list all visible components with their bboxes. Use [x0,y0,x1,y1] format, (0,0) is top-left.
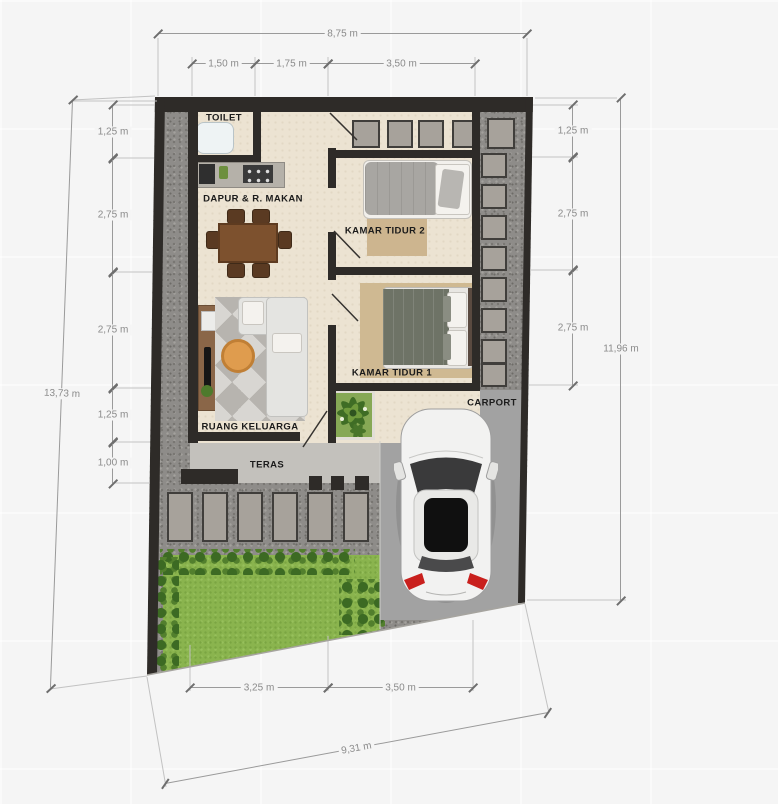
dim-label: 3,50 m [382,683,419,694]
paving-tile [481,153,507,178]
wall-bedroom2-north [336,150,480,158]
dining-chair [278,231,292,249]
bed-single-blanket [365,162,439,215]
dim-label: 1,25 m [95,410,132,421]
paving-tile [481,339,507,364]
wall-bedroom-divider [336,267,480,275]
dining-table [218,223,278,263]
paving-tile [481,184,507,209]
dim-label: 1,25 m [555,126,592,137]
dim-left-seg-2: 2,75 m [112,272,113,388]
dim-left-seg-3: 1,25 m [112,388,113,442]
dim-right-seg-0: 1,25 m [572,105,573,157]
dim-top-total: 8,75 m [158,33,527,34]
label-text: KAMAR TIDUR 2 [345,226,425,237]
label-text: TERAS [250,460,284,471]
refrigerator [199,164,215,184]
dim-right-total: 11,96 m [620,98,621,600]
wall-living-south [188,432,300,441]
paving-tile [481,308,507,333]
room-label-kitchen-dining: DAPUR & R. MAKAN [203,194,303,205]
wall-hall-1 [328,148,336,188]
dim-left-total: 13,73 m [50,100,73,688]
wall-north [147,97,533,112]
dim-top-seg-1: 1,75 m [255,63,328,64]
wall-hall-3 [328,325,336,443]
dim-label: 2,75 m [95,325,132,336]
pillow [443,296,451,322]
dim-label: 3,25 m [241,683,278,694]
label-text: DAPUR & R. MAKAN [203,194,303,205]
paving-tile [418,120,444,148]
stove [243,165,273,183]
toilet-sink [196,122,234,154]
terrace-post [355,476,369,490]
label-text: RUANG KELUARGA [202,422,299,433]
paving-tile [481,246,507,271]
paving-tile [352,120,380,148]
paving-tile [237,492,263,542]
dim-label: 9,31 m [337,740,375,757]
wall-toilet-east [253,112,261,162]
dim-label: 1,75 m [273,59,310,70]
room-label-terrace: TERAS [250,460,284,471]
dining-chair [227,263,245,278]
dim-label: 2,75 m [555,208,592,219]
paving-tile [307,492,333,542]
paving-tile [481,215,507,240]
bed-double-blanket [383,289,449,365]
dim-right-seg-1: 2,75 m [572,157,573,270]
sofa-pillow [272,333,302,353]
room-label-toilet: TOILET [206,113,242,124]
hedge-right-bush [339,579,385,635]
dim-left-seg-0: 1,25 m [112,105,113,158]
dim-right-seg-2: 2,75 m [572,270,573,385]
wall-terrace-front [181,469,238,484]
room-label-family-room: RUANG KELUARGA [202,422,299,433]
dining-chair [227,209,245,224]
dining-chair [252,209,270,224]
paving-tile [202,492,228,542]
paving-tile [343,492,369,542]
dim-top-seg-0: 1,50 m [192,63,255,64]
coffee-table [221,339,255,373]
sofa-pillow [242,301,264,325]
dim-bottom-seg-0: 3,25 m [190,687,328,688]
dim-label: 3,50 m [383,59,420,70]
dim-label: 1,25 m [95,126,132,137]
label-text: KAMAR TIDUR 1 [352,368,432,379]
paving-tile [481,277,507,302]
dim-left-seg-4: 1,00 m [112,442,113,483]
wall-entry-stub [328,432,336,441]
sofa-right [266,297,308,417]
dim-label: 2,75 m [555,322,592,333]
label-text: CARPORT [467,398,517,409]
dim-bottom-total: 9,31 m [165,712,548,784]
dining-chair [252,263,270,278]
wall-hall-2 [328,232,336,280]
dim-label: 1,50 m [205,59,242,70]
paving-tile [272,492,298,542]
terrace-post [331,476,344,490]
dim-label: 2,75 m [95,210,132,221]
terrace-post [309,476,322,490]
paving-tile [481,363,507,387]
sunroof [424,498,468,552]
pillow [443,334,451,360]
cabinet-plant [201,385,213,397]
planter-box [331,390,375,440]
dim-left-seg-1: 2,75 m [112,158,113,272]
dim-label: 11,96 m [600,344,641,355]
paving-tile [167,492,193,542]
paving-tile [387,120,413,148]
dim-label: 13,73 m [41,388,84,401]
label-text: TOILET [206,113,242,124]
dim-top-seg-2: 3,50 m [328,63,475,64]
room-label-carport: CARPORT [467,398,517,409]
counter-plant [219,166,228,179]
windshield [410,458,482,495]
planter-plant [334,393,372,437]
room-label-bedroom1: KAMAR TIDUR 1 [352,368,432,379]
dim-bottom-seg-1: 3,50 m [328,687,473,688]
room-label-bedroom2: KAMAR TIDUR 2 [345,226,425,237]
paving-tile [487,118,515,149]
hedge-top [160,549,355,575]
car [394,406,498,606]
dim-label: 8,75 m [324,29,361,40]
wall-bedroom1-south [336,383,480,391]
floor-plan-canvas: TOILET DAPUR & R. MAKAN KAMAR TIDUR 2 KA… [0,0,778,804]
wall-toilet-south [196,155,253,162]
dim-label: 1,00 m [95,457,132,468]
